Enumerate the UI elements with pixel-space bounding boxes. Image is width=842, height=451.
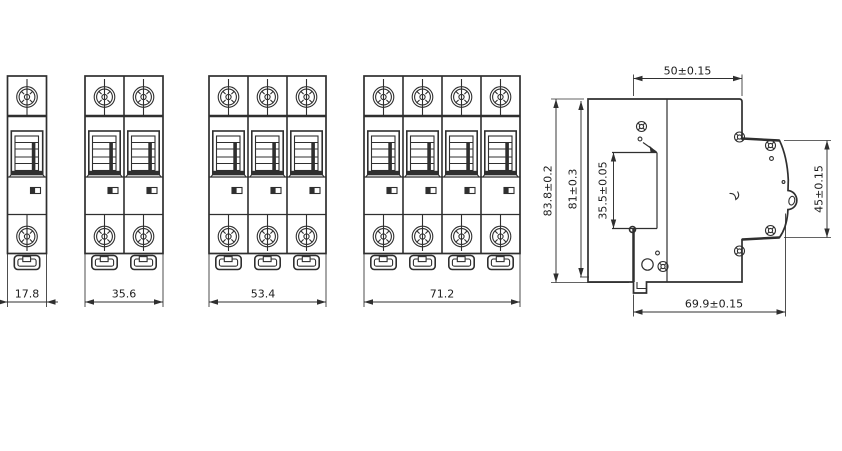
dim-width-2-pole: 35.6 [85,254,163,308]
mcb-dimensional-drawing: 17.8 35.6 53.4 [0,0,842,451]
screw-icon [735,246,745,256]
pole-module [289,79,325,270]
toggle-spring-line [730,192,739,200]
dim-label-width-4-pole: 71.2 [430,288,455,301]
pole-module [87,79,123,270]
pole-module [483,79,519,270]
dim-din-slot-height: 35.5±0.05 [597,153,614,229]
side-view: 50±0.15 83.8±0.2 81±0.3 35.5±0.05 45±0.1… [542,65,832,317]
din-rail-slot [612,143,657,229]
dimensional-drawing-canvas: 17.8 35.6 53.4 [0,0,842,451]
front-view-2-pole: 35.6 [85,76,163,307]
front-view-4-pole: 71.2 [364,76,520,307]
pole-module [444,79,480,270]
screw-icon [637,122,647,132]
front-view-1-pole: 17.8 [0,76,58,307]
pole-module [211,79,247,270]
dim-label-din-slot-height: 35.5±0.05 [597,161,610,219]
dim-overall-height: 83.8±0.2 [542,99,630,283]
side-outline [588,99,797,293]
mounting-hole [642,259,653,270]
dim-label-overall-depth: 69.9±0.15 [685,298,743,311]
dim-label-width-1-pole: 17.8 [15,288,40,301]
pole-module [126,79,162,270]
dim-top-depth: 50±0.15 [634,65,743,97]
dim-label-width-2-pole: 35.6 [112,288,137,301]
screw-icon [766,226,776,236]
front-view-3-pole: 53.4 [209,76,326,307]
dim-label-body-height: 81±0.3 [567,169,580,210]
dim-label-overall-height: 83.8±0.2 [542,165,555,216]
pole-module [366,79,402,270]
dim-label-width-3-pole: 53.4 [251,288,276,301]
dim-body-height: 81±0.3 [567,101,582,277]
pole-module [9,79,45,270]
pole-module [405,79,441,270]
din-release-clip [630,227,647,289]
dim-label-front-face-height: 45±0.15 [813,165,826,213]
dim-front-face-height: 45±0.15 [784,141,831,238]
pole-module [250,79,286,270]
toggle-handle-tip [788,196,796,206]
screw-icon [735,132,745,142]
dim-label-top-depth: 50±0.15 [664,65,712,78]
screw-icon [766,141,776,151]
